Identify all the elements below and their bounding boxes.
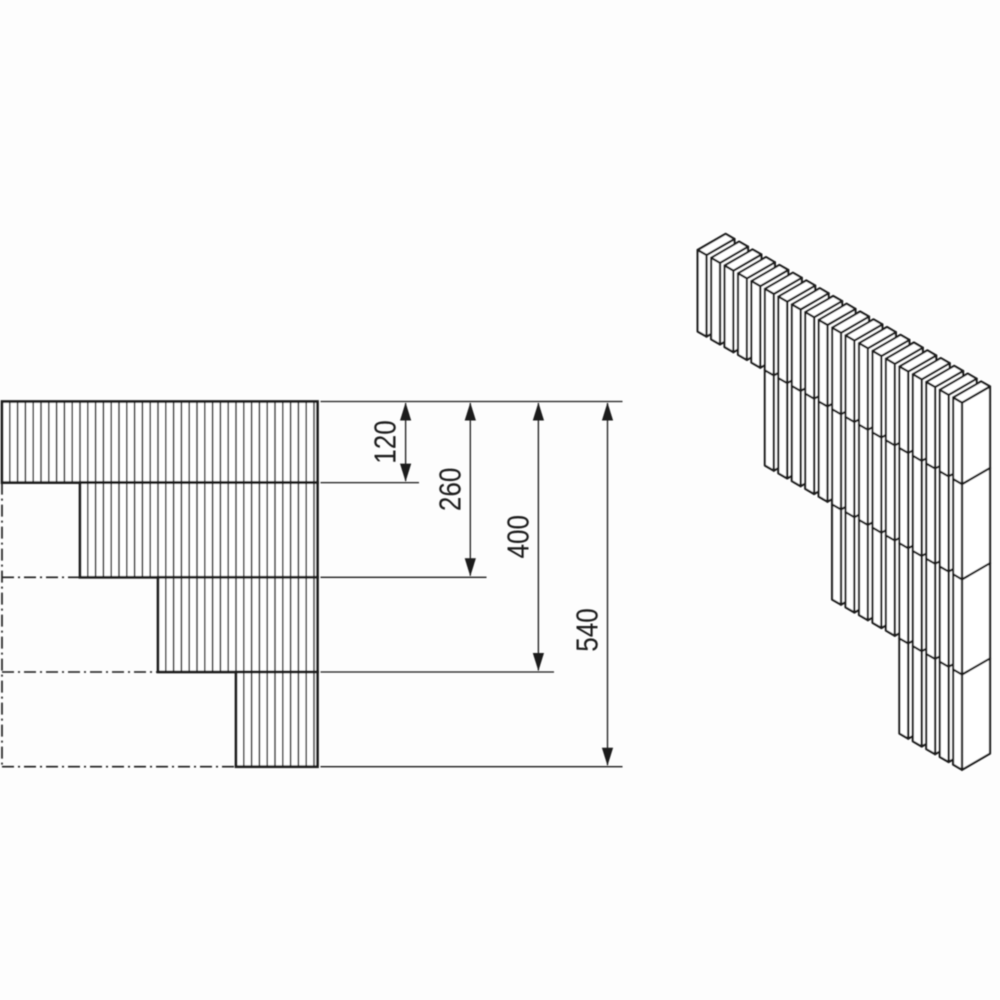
svg-text:260: 260 <box>432 468 467 512</box>
svg-text:400: 400 <box>500 515 535 559</box>
svg-text:540: 540 <box>570 608 605 652</box>
svg-text:120: 120 <box>368 420 403 464</box>
